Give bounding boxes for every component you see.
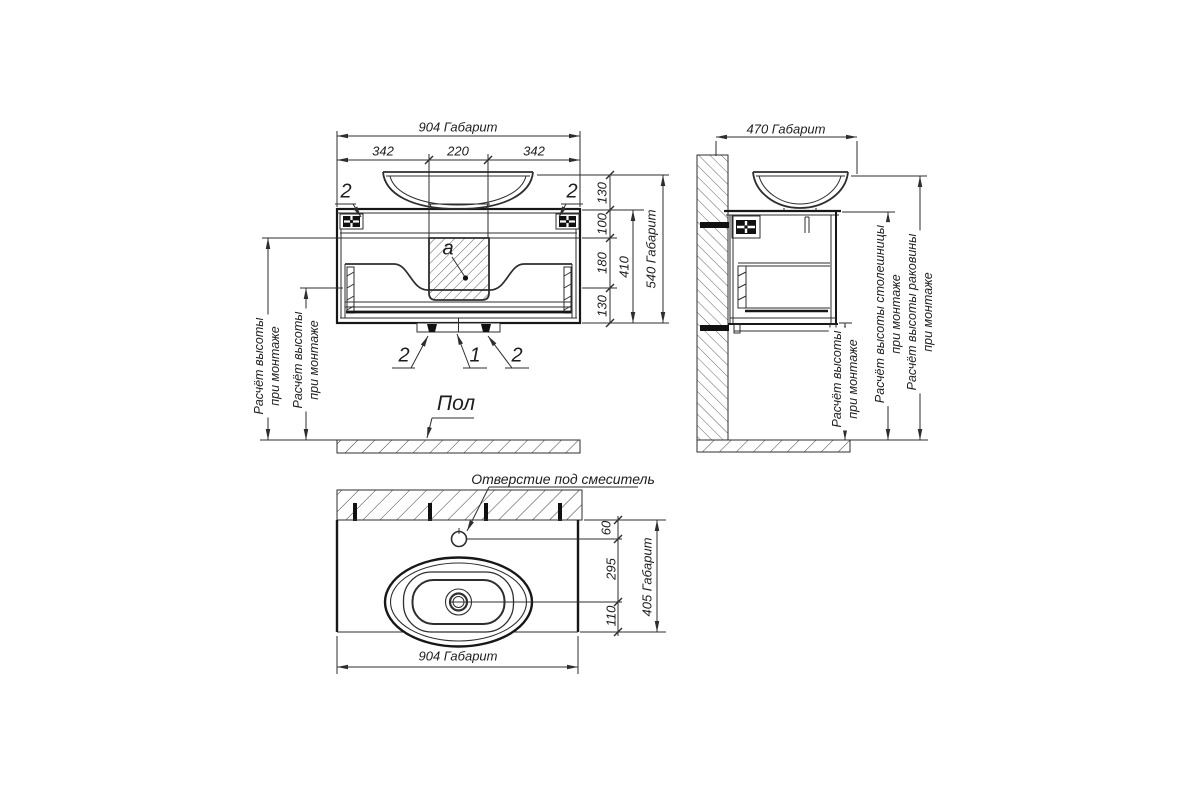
front-top-section-dim: 100 (595, 213, 610, 235)
side-sink-height-note: Расчёт высоты раковины при монтаже (904, 231, 937, 394)
front-mount-height-note-2: Расчёт высоты при монтаже (290, 309, 323, 412)
side-total-depth-dim: 470 Габарит (746, 122, 825, 137)
front-middle-section-dim: 180 (595, 252, 610, 274)
wall-clip-left (340, 214, 363, 229)
side-mount-height-note: Расчёт высоты при монтаже (829, 328, 862, 431)
foot-callout-left: 2 (398, 345, 409, 368)
top-front-offset-dim: 110 (604, 606, 619, 627)
technical-drawing-canvas: 904 Габарит 342 220 342 130 100 180 130 … (0, 0, 1188, 800)
drawing-linework (0, 0, 1188, 800)
wall-anchor-top (700, 222, 729, 228)
front-sink-height-dim: 130 (595, 182, 610, 204)
top-view (337, 487, 666, 674)
top-faucet-offset-dim: 60 (599, 521, 614, 535)
front-width-left-dim: 342 (372, 144, 394, 159)
clip-callout-left: 2 (340, 181, 351, 204)
front-mount-height-note-1: Расчёт высоты при монтаже (251, 315, 284, 418)
side-countertop-height-note: Расчёт высоты столешницы при монтаже (872, 222, 905, 406)
front-total-height-dim: 540 Габарит (644, 209, 659, 288)
wall-hatch-top (337, 490, 582, 520)
wall-clip-side (732, 216, 760, 238)
foot-callout-right: 2 (511, 345, 522, 368)
floor-hatch-side (697, 440, 850, 452)
base-callout-center: 1 (469, 345, 480, 368)
siphon-callout: a (442, 238, 453, 261)
wall-hatch (697, 155, 728, 440)
vessel-sink-front (383, 172, 533, 209)
front-total-width-dim: 904 Габарит (418, 120, 497, 135)
faucet-hole-label: Отверстие под смеситель (471, 471, 655, 487)
floor-hatch-front (337, 440, 580, 453)
front-cabinet-height-dim: 410 (617, 256, 632, 278)
wall-anchor-bottom (700, 325, 729, 331)
front-width-right-dim: 342 (523, 144, 545, 159)
top-total-depth-dim: 405 Габарит (640, 537, 655, 616)
clip-callout-right: 2 (566, 181, 577, 204)
top-drain-offset-dim: 295 (604, 558, 619, 580)
floor-label: Пол (437, 392, 475, 416)
vessel-sink-side (753, 172, 848, 211)
top-total-width-dim: 904 Габарит (418, 649, 497, 664)
front-bottom-section-dim: 130 (595, 295, 610, 317)
front-width-center-dim: 220 (447, 144, 469, 159)
